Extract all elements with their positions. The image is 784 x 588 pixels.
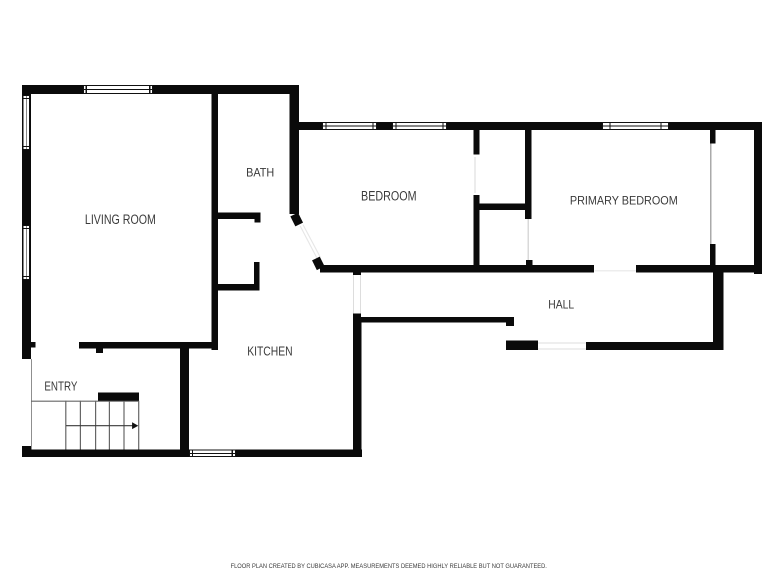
svg-text:BATH: BATH [246, 166, 274, 180]
svg-text:FLOOR PLAN CREATED BY CUBICASA: FLOOR PLAN CREATED BY CUBICASA APP. MEAS… [231, 563, 548, 570]
svg-text:PRIMARY BEDROOM: PRIMARY BEDROOM [570, 193, 678, 207]
svg-text:HALL: HALL [548, 298, 574, 311]
svg-text:LIVING ROOM: LIVING ROOM [85, 212, 156, 227]
svg-text:BEDROOM: BEDROOM [361, 188, 417, 203]
svg-text:KITCHEN: KITCHEN [247, 345, 292, 359]
svg-text:ENTRY: ENTRY [44, 380, 78, 394]
